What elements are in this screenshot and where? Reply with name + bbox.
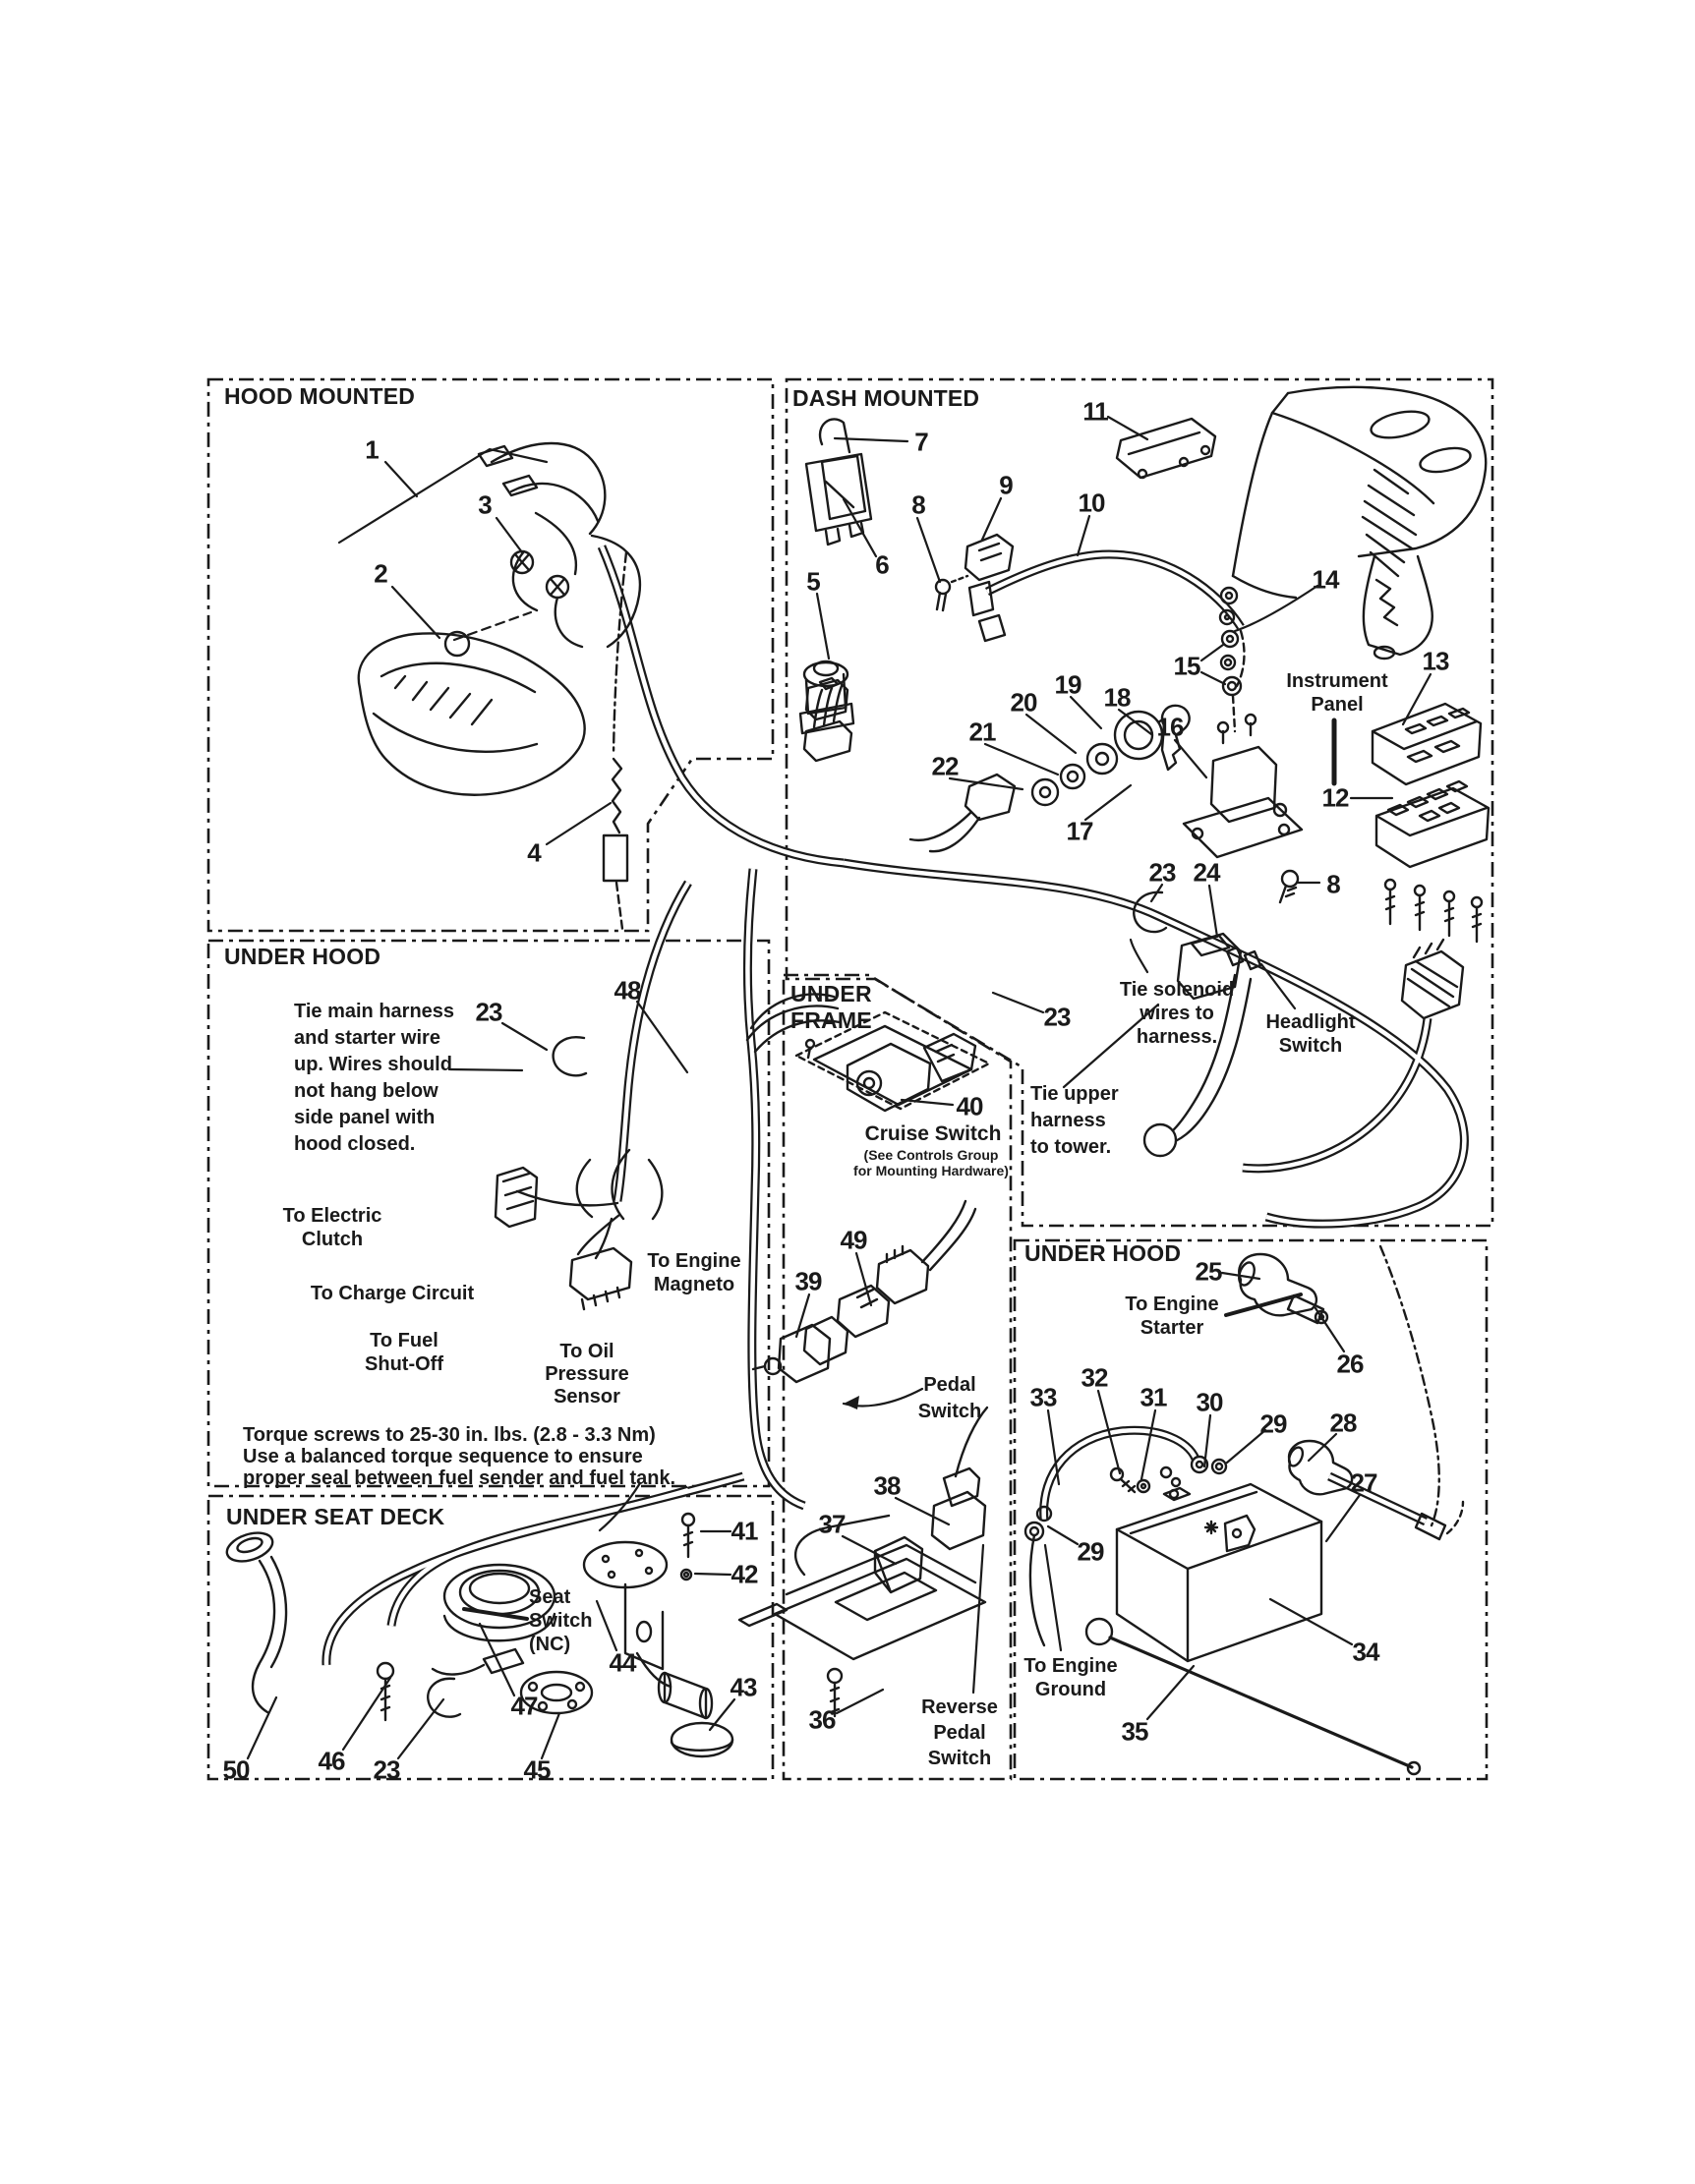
callout-12: 12: [1322, 783, 1349, 814]
callout-25: 25: [1196, 1257, 1222, 1288]
cruise-switch-label: Cruise Switch: [865, 1121, 1002, 1146]
callout-40: 40: [957, 1092, 983, 1122]
parts-diagram-page: HOOD MOUNTEDDASH MOUNTEDUNDER HOODUNDER …: [0, 0, 1695, 2184]
tie-main-harness-note: Tie main harness and starter wire up. Wi…: [294, 999, 454, 1158]
callout-50: 50: [223, 1755, 250, 1786]
callout-24: 24: [1194, 858, 1220, 889]
callout-16: 16: [1157, 713, 1184, 743]
callout-2: 2: [374, 559, 386, 590]
callout-37: 37: [819, 1510, 846, 1540]
callout-3: 3: [478, 490, 491, 521]
callout-29-hardware: 29: [1260, 1409, 1287, 1440]
callout-27: 27: [1351, 1468, 1377, 1499]
section-title-hood-mounted: HOOD MOUNTED: [224, 383, 415, 410]
callout-4: 4: [527, 838, 540, 869]
section-title-under-hood-right: UNDER HOOD: [1024, 1240, 1181, 1267]
callout-19: 19: [1055, 670, 1081, 701]
section-title-under-frame: UNDER FRAME: [790, 981, 872, 1034]
tie-upper-harness-note: Tie upper harness to tower.: [1030, 1081, 1119, 1161]
callout-28: 28: [1330, 1408, 1357, 1439]
instrument-panel-label: Instrument Panel: [1286, 669, 1387, 717]
callout-43: 43: [731, 1673, 757, 1703]
callout-13: 13: [1423, 647, 1449, 677]
callout-35: 35: [1122, 1717, 1148, 1748]
callout-10: 10: [1079, 489, 1105, 519]
callout-5: 5: [806, 567, 819, 598]
callout-34: 34: [1353, 1638, 1379, 1668]
callout-17: 17: [1067, 817, 1093, 847]
callout-9: 9: [999, 471, 1012, 501]
text-layer: HOOD MOUNTEDDASH MOUNTEDUNDER HOODUNDER …: [0, 0, 1695, 2184]
callout-23-underhood: 23: [476, 998, 502, 1028]
callout-8-panel: 8: [1326, 870, 1339, 900]
to-electric-clutch-label: To Electric Clutch: [283, 1204, 382, 1251]
callout-1: 1: [365, 435, 378, 466]
callout-46: 46: [319, 1747, 345, 1777]
callout-33: 33: [1030, 1383, 1057, 1413]
callout-8-dash: 8: [911, 490, 924, 521]
callout-26: 26: [1337, 1350, 1364, 1380]
callout-39: 39: [795, 1267, 822, 1297]
callout-41: 41: [731, 1517, 758, 1547]
to-engine-magneto-label: To Engine Magneto: [647, 1249, 740, 1296]
callout-6: 6: [875, 550, 888, 581]
callout-49: 49: [841, 1226, 867, 1256]
callout-38: 38: [874, 1471, 901, 1502]
callout-11: 11: [1082, 397, 1108, 428]
callout-21: 21: [969, 718, 996, 748]
to-oil-pressure-label: To Oil Pressure Sensor: [545, 1341, 629, 1408]
callout-42: 42: [731, 1560, 758, 1590]
seat-switch-label: Seat Switch (NC): [529, 1585, 592, 1656]
callout-15: 15: [1174, 652, 1200, 682]
headlight-switch-label: Headlight Switch: [1265, 1010, 1355, 1058]
callout-22: 22: [932, 752, 959, 782]
callout-23-upper: 23: [1044, 1003, 1071, 1033]
callout-31: 31: [1140, 1383, 1167, 1413]
callout-23-dash: 23: [1149, 858, 1176, 889]
reverse-pedal-switch-label: Reverse Pedal Switch: [921, 1695, 998, 1771]
section-title-under-seat-deck: UNDER SEAT DECK: [226, 1504, 444, 1530]
cruise-switch-subnote: (See Controls Group for Mounting Hardwar…: [853, 1147, 1009, 1178]
callout-29-ground: 29: [1078, 1537, 1104, 1568]
callout-32: 32: [1081, 1363, 1108, 1394]
callout-30: 30: [1197, 1388, 1223, 1418]
callout-18: 18: [1104, 683, 1131, 714]
tie-solenoid-note: Tie solenoid wires to harness.: [1120, 978, 1234, 1049]
to-engine-ground-label: To Engine Ground: [1023, 1654, 1117, 1701]
callout-45: 45: [524, 1755, 551, 1786]
callout-14: 14: [1313, 565, 1339, 596]
to-charge-circuit-label: To Charge Circuit: [311, 1282, 474, 1305]
callout-48: 48: [614, 976, 641, 1006]
callout-7: 7: [914, 428, 927, 458]
torque-note: Torque screws to 25-30 in. lbs. (2.8 - 3…: [243, 1424, 675, 1489]
section-title-under-hood: UNDER HOOD: [224, 944, 380, 970]
to-fuel-shutoff-label: To Fuel Shut-Off: [365, 1329, 443, 1376]
section-title-dash-mounted: DASH MOUNTED: [792, 385, 979, 412]
to-engine-starter-label: To Engine Starter: [1125, 1293, 1218, 1340]
callout-47: 47: [511, 1692, 538, 1722]
callout-23-seatdeck: 23: [374, 1755, 400, 1786]
callout-36: 36: [809, 1705, 836, 1736]
pedal-switch-label: Pedal Switch: [918, 1372, 981, 1425]
callout-20: 20: [1011, 688, 1037, 718]
callout-44: 44: [610, 1648, 636, 1679]
